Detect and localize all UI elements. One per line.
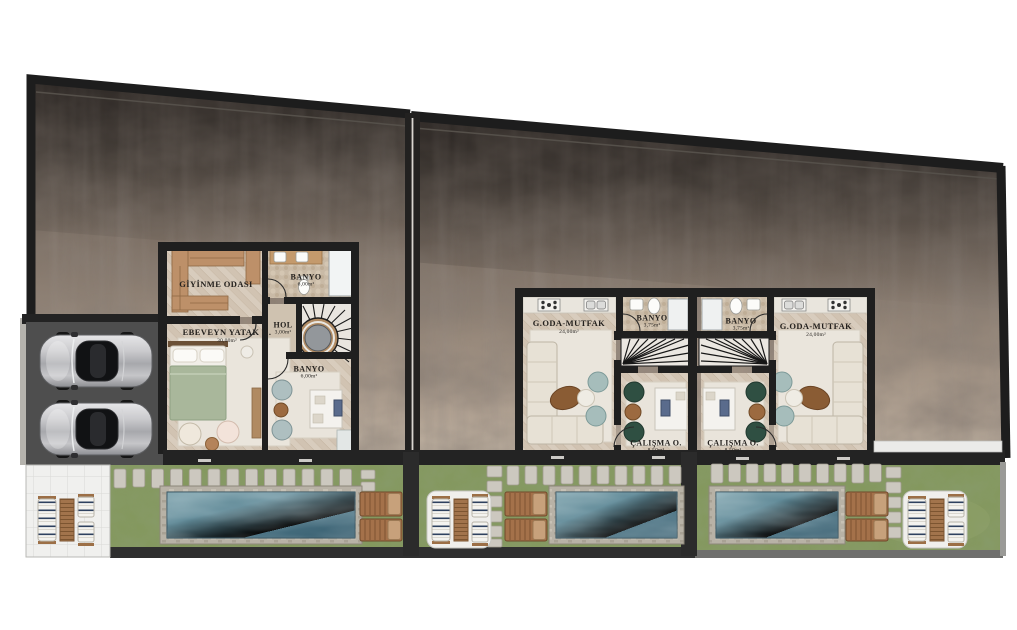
pool-2: [549, 486, 684, 544]
car-1: [40, 332, 152, 390]
chair: [746, 422, 766, 442]
garden-boundary-wall: [110, 547, 695, 558]
coffee-table: [206, 438, 219, 451]
lounger: [505, 519, 547, 541]
sink-icon: [296, 252, 308, 262]
chair: [624, 382, 644, 402]
study-furniture: [614, 382, 687, 447]
side-table: [578, 390, 595, 407]
bathroom-lower-furniture: [268, 359, 352, 451]
pillow: [200, 349, 224, 362]
chair: [272, 380, 292, 400]
toilet-icon: [299, 280, 310, 295]
car-2: [40, 400, 152, 458]
table: [60, 499, 74, 541]
chair: [624, 422, 644, 442]
shower-icon: [668, 299, 688, 330]
floorplan-image: GİYİNME ODASI BANYO 6,00m² HOL 3,00m² EB…: [0, 0, 1017, 630]
lounger: [505, 492, 547, 516]
patio-left: [26, 465, 110, 557]
shower-icon: [337, 430, 352, 451]
round-table: [625, 404, 641, 420]
chair: [948, 497, 964, 517]
garden-boundary-wall: [695, 550, 1003, 558]
sink-icon: [274, 252, 286, 262]
table: [454, 499, 468, 541]
terrace: [874, 441, 1002, 452]
armchair: [588, 372, 608, 392]
kitchen: [523, 297, 616, 313]
bench: [432, 499, 450, 541]
armchair: [217, 421, 239, 443]
armchair: [774, 406, 794, 426]
lounger: [846, 492, 888, 516]
computer-icon: [720, 400, 729, 416]
chair: [78, 522, 94, 542]
toilet-icon: [730, 298, 742, 314]
sink-icon: [747, 299, 760, 310]
garden-divider-wall: [403, 452, 419, 556]
chair: [472, 497, 488, 517]
lounger: [846, 519, 888, 541]
floorplan-scene: [0, 0, 1017, 630]
dresser: [252, 388, 261, 438]
round-table: [749, 404, 765, 420]
living-furniture: [527, 330, 612, 444]
sofa: [787, 416, 863, 444]
sink-icon: [630, 299, 643, 310]
chair: [272, 420, 292, 440]
pool-3: [709, 486, 845, 544]
kitchen: [774, 297, 867, 313]
driveway: [20, 314, 168, 465]
garden-seating-pad-middle: [427, 491, 491, 548]
living-furniture: [772, 330, 863, 444]
shower-icon: [329, 250, 352, 296]
armchair: [586, 406, 606, 426]
side-table: [241, 346, 253, 358]
bench: [38, 499, 56, 541]
chair: [948, 522, 964, 542]
armchair: [179, 423, 201, 445]
computer-icon: [661, 400, 670, 416]
study-furniture: [703, 382, 776, 447]
computer-icon: [334, 400, 342, 416]
shower-icon: [702, 299, 722, 330]
table: [930, 499, 944, 541]
chair: [472, 522, 488, 542]
garden-seating-pad-right: [903, 491, 967, 548]
chair: [746, 382, 766, 402]
pillow: [173, 349, 197, 362]
left-villa-plan: [158, 242, 359, 454]
lounger: [360, 492, 402, 516]
middle-villa-plan: [515, 288, 697, 454]
right-villa-plan: [695, 288, 875, 454]
round-table: [274, 403, 288, 417]
side-table: [786, 390, 803, 407]
master-bedroom-furniture: [168, 338, 290, 451]
bench: [908, 499, 926, 541]
toilet-icon: [648, 298, 660, 314]
pool-1: [160, 486, 362, 544]
lounger: [360, 519, 402, 541]
chair: [78, 497, 94, 517]
